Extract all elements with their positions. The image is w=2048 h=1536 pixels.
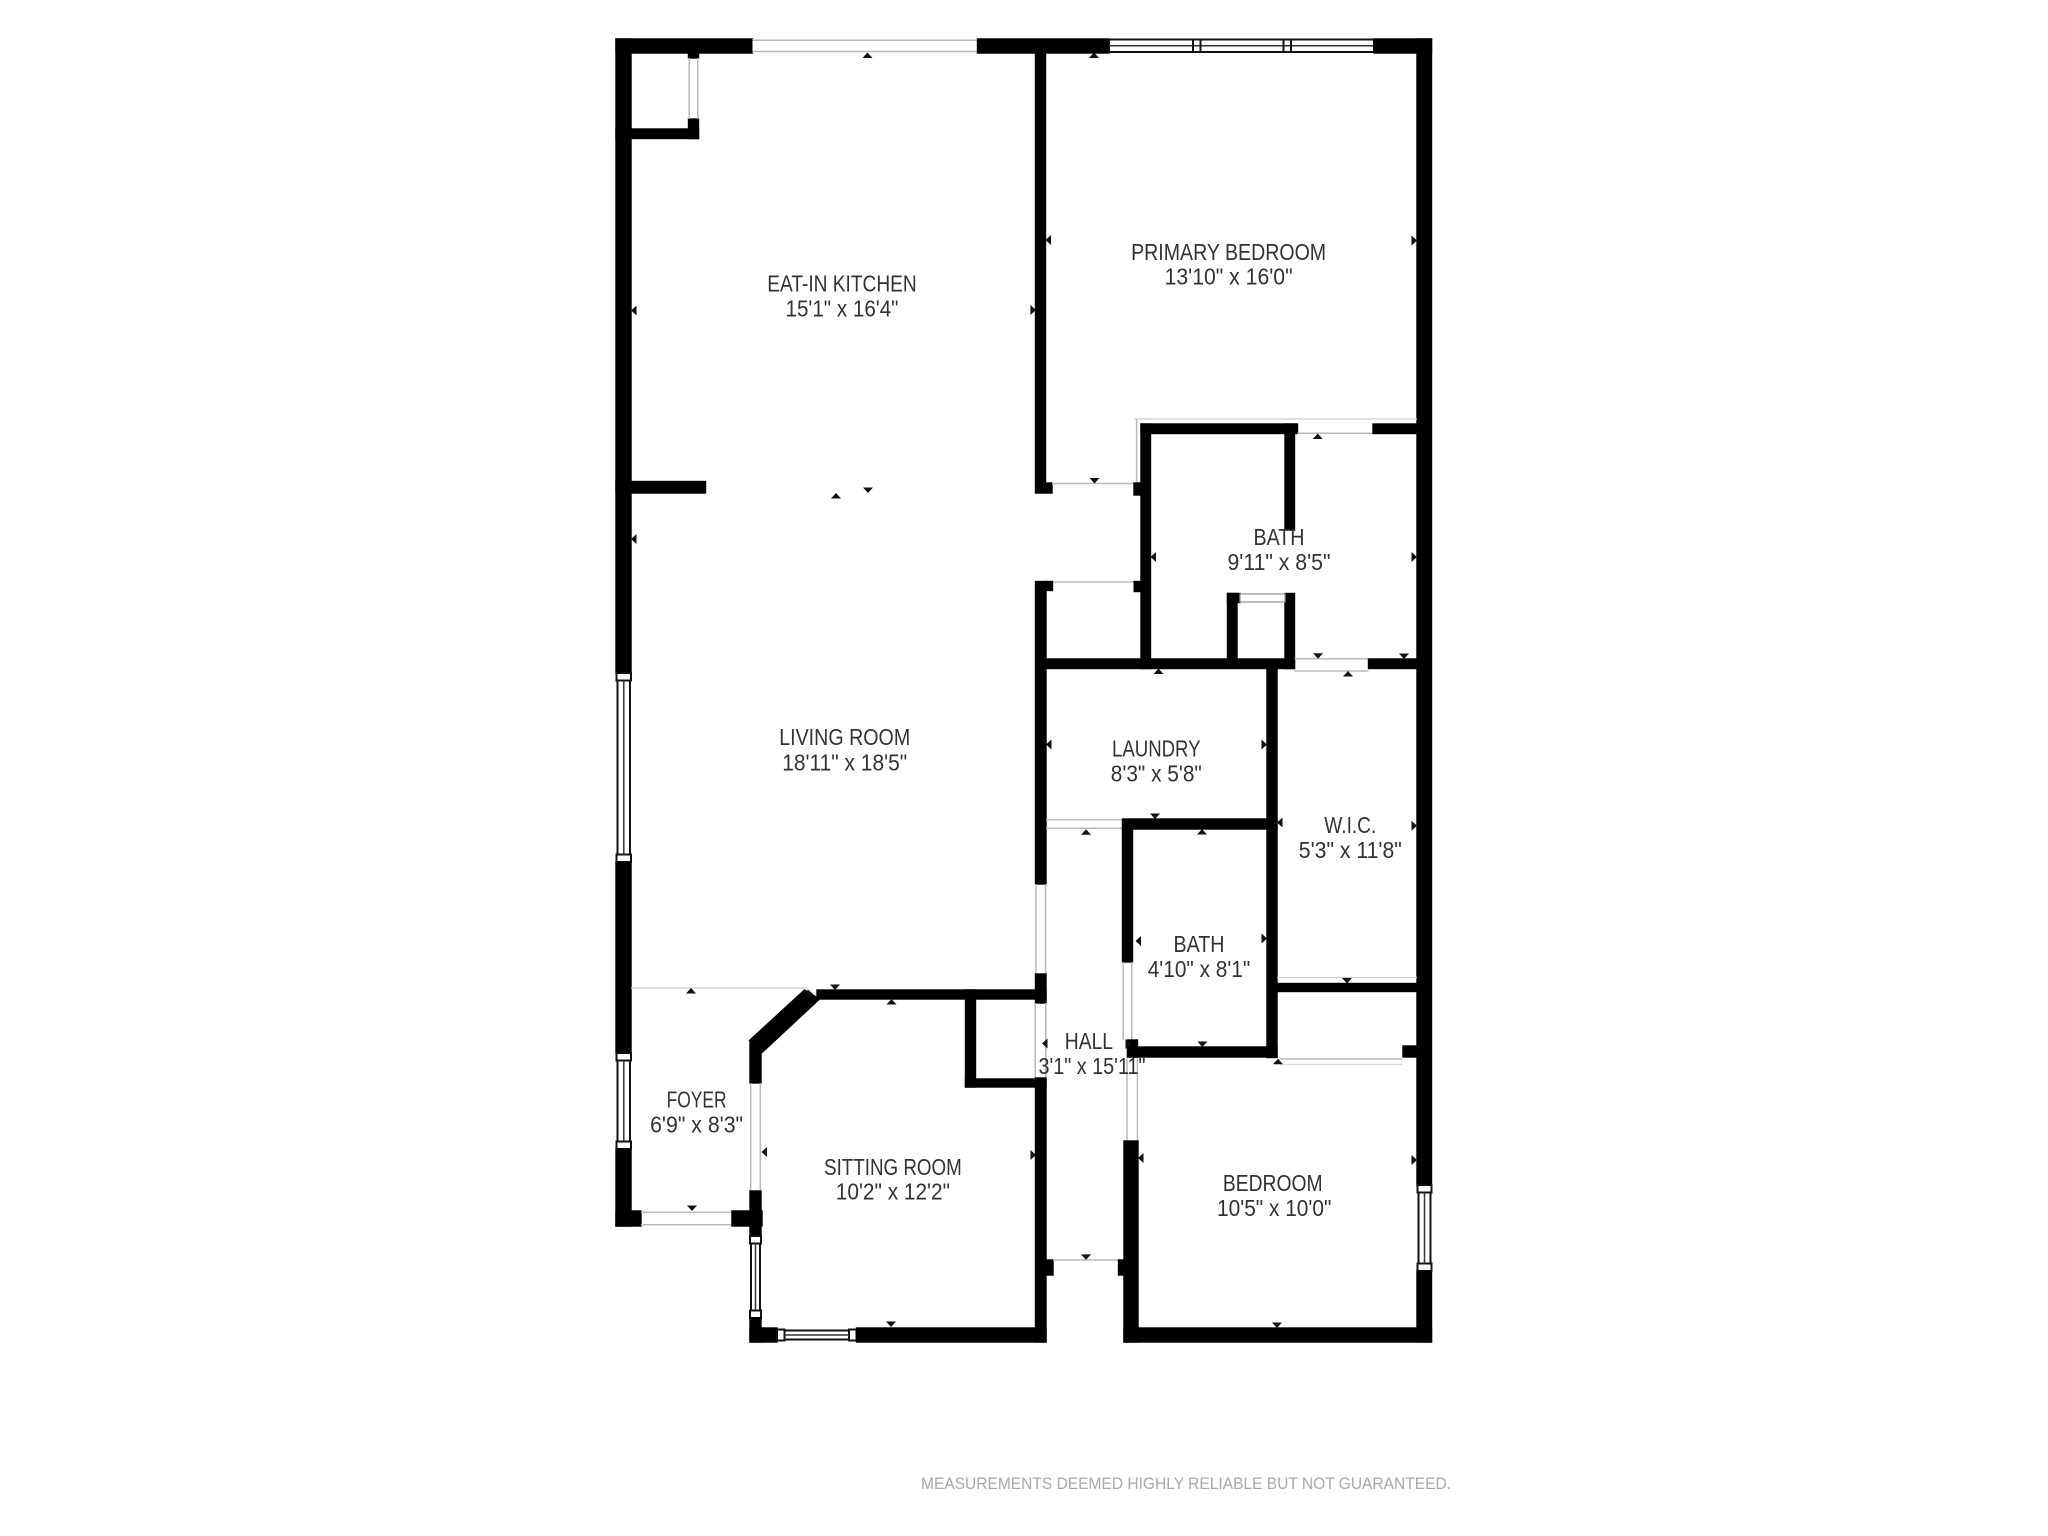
svg-text:4'10" x 8'1": 4'10" x 8'1" (1148, 956, 1251, 982)
svg-text:BATH: BATH (1174, 931, 1225, 957)
svg-text:SITTING ROOM: SITTING ROOM (824, 1154, 962, 1180)
svg-text:LIVING ROOM: LIVING ROOM (779, 724, 910, 750)
svg-text:3'1" x 15'11": 3'1" x 15'11" (1039, 1053, 1146, 1079)
svg-text:13'10" x 16'0": 13'10" x 16'0" (1165, 264, 1293, 290)
svg-text:HALL: HALL (1065, 1028, 1113, 1054)
svg-text:18'11" x 18'5": 18'11" x 18'5" (782, 750, 907, 776)
svg-text:6'9" x 8'3": 6'9" x 8'3" (650, 1111, 743, 1137)
svg-text:9'11" x 8'5": 9'11" x 8'5" (1228, 549, 1331, 575)
svg-text:MEASUREMENTS DEEMED HIGHLY REL: MEASUREMENTS DEEMED HIGHLY RELIABLE BUT … (921, 1474, 1451, 1493)
svg-text:FOYER: FOYER (667, 1087, 727, 1113)
svg-text:LAUNDRY: LAUNDRY (1112, 736, 1201, 762)
svg-text:BATH: BATH (1254, 524, 1305, 550)
svg-text:15'1" x 16'4": 15'1" x 16'4" (786, 296, 899, 322)
svg-text:W.I.C.: W.I.C. (1324, 812, 1376, 838)
svg-text:8'3" x 5'8": 8'3" x 5'8" (1111, 761, 1202, 787)
svg-text:10'2" x 12'2": 10'2" x 12'2" (836, 1179, 950, 1205)
svg-text:10'5" x 10'0": 10'5" x 10'0" (1217, 1195, 1331, 1221)
svg-text:PRIMARY BEDROOM: PRIMARY BEDROOM (1131, 239, 1326, 265)
svg-text:EAT-IN KITCHEN: EAT-IN KITCHEN (767, 271, 917, 297)
svg-text:5'3" x 11'8": 5'3" x 11'8" (1299, 837, 1402, 863)
svg-text:BEDROOM: BEDROOM (1223, 1170, 1323, 1196)
